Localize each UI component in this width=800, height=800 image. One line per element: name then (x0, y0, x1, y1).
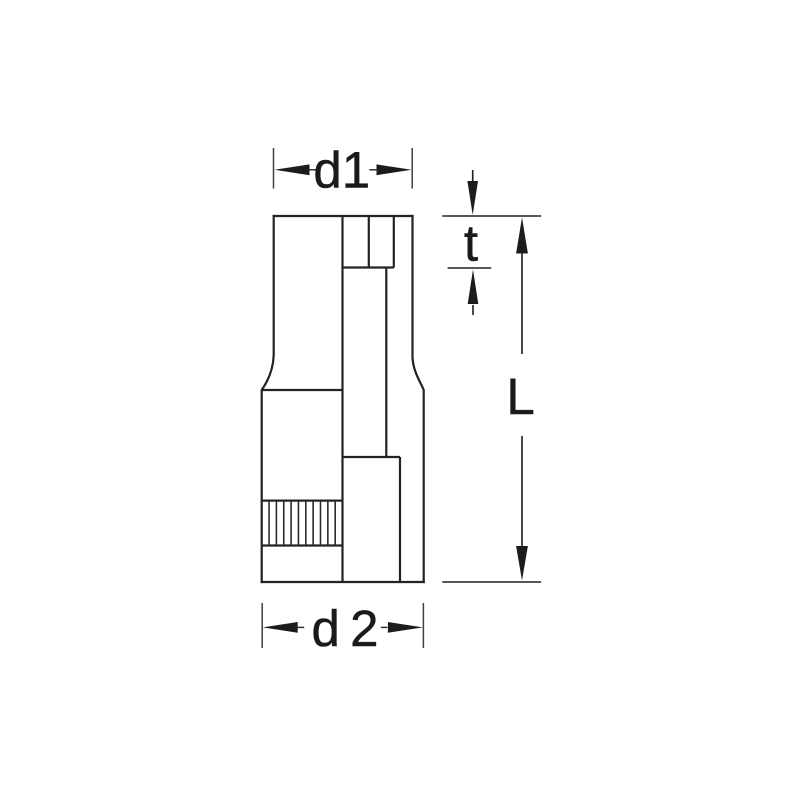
svg-text:d 2: d 2 (312, 600, 379, 657)
svg-text:L: L (506, 368, 534, 425)
svg-text:t: t (464, 215, 478, 272)
svg-text:d1: d1 (313, 142, 370, 199)
